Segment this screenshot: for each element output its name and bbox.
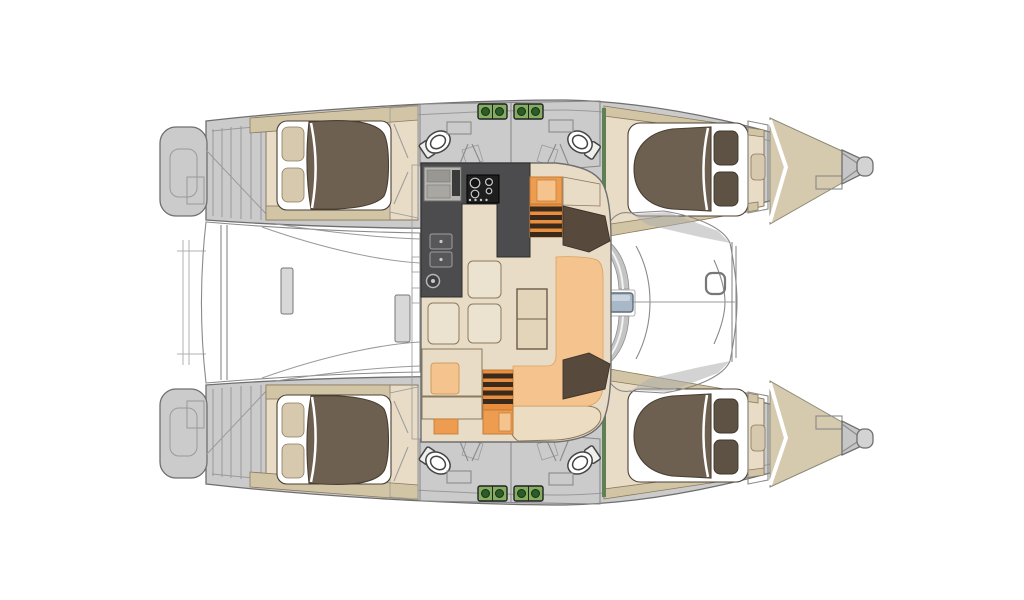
bow-deck [770, 118, 842, 224]
galley-faucet [452, 170, 460, 196]
deck-hatch-fwd [514, 104, 543, 119]
stbd-cabinet-lower [422, 397, 482, 419]
transom-platform [160, 127, 207, 216]
aft-cockpit [177, 222, 420, 383]
cockpit-support-fwd [395, 295, 410, 342]
crew-berth-pillow [751, 154, 765, 180]
port-steps-seat-inset [537, 180, 556, 201]
aft-cockpit-floor [202, 222, 421, 383]
counter-hob-dot [431, 279, 435, 283]
stbd-small-seat [434, 419, 458, 434]
aft-crossbeam [221, 225, 227, 380]
sink-basin-2 [427, 185, 450, 198]
floor-plan-svg [0, 0, 1024, 600]
cockpit-support-aft [281, 268, 293, 314]
forward-cockpit [600, 211, 737, 393]
aft-bed-mattress [307, 121, 389, 210]
bow-cap [857, 157, 873, 176]
salon [412, 163, 611, 442]
stbd-cabinet-cushion [431, 363, 459, 394]
stbd-steps-seat-inset [499, 413, 511, 431]
boat-floor-plan [0, 0, 1024, 600]
deck-hatch-aft [478, 104, 507, 119]
sink-basin-1 [427, 170, 450, 182]
